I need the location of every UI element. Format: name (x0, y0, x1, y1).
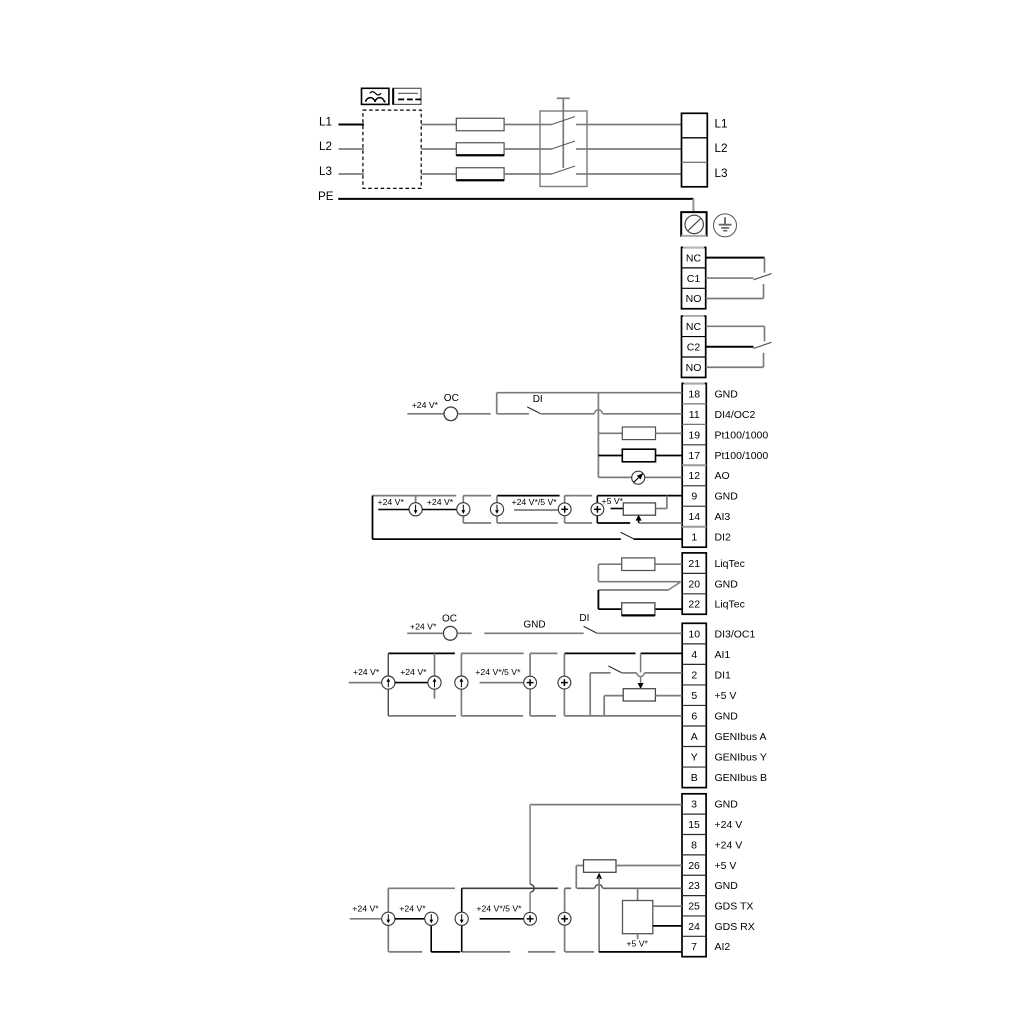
svg-text:2: 2 (691, 669, 697, 681)
svg-text:GND: GND (523, 620, 545, 631)
svg-text:7: 7 (691, 941, 697, 953)
svg-text:C2: C2 (687, 341, 701, 353)
svg-text:B: B (691, 772, 698, 784)
svg-text:19: 19 (688, 429, 700, 441)
svg-text:GND: GND (715, 578, 739, 590)
svg-text:L2: L2 (715, 142, 728, 155)
svg-text:GDS TX: GDS TX (715, 900, 754, 912)
svg-text:AO: AO (715, 470, 730, 482)
svg-text:5: 5 (691, 690, 697, 702)
svg-text:DI2: DI2 (715, 532, 732, 544)
svg-text:17: 17 (688, 450, 700, 462)
svg-text:DI: DI (579, 613, 589, 624)
svg-text:24: 24 (688, 921, 700, 933)
svg-text:9: 9 (691, 491, 697, 503)
svg-text:GND: GND (715, 880, 739, 892)
svg-text:+24 V*: +24 V* (399, 904, 426, 914)
svg-text:11: 11 (689, 409, 700, 421)
svg-text:22: 22 (688, 599, 700, 611)
svg-text:10: 10 (688, 628, 700, 640)
svg-text:+5 V: +5 V (715, 860, 737, 872)
svg-text:PE: PE (318, 190, 334, 203)
svg-text:+24 V*: +24 V* (410, 622, 437, 632)
svg-text:4: 4 (691, 649, 697, 661)
svg-text:LiqTec: LiqTec (715, 558, 745, 570)
svg-text:+24 V*: +24 V* (427, 497, 454, 507)
svg-text:L1: L1 (715, 117, 728, 130)
svg-text:21: 21 (688, 558, 700, 570)
svg-text:+24 V*/5 V*: +24 V*/5 V* (475, 667, 521, 677)
svg-text:NO: NO (686, 362, 702, 374)
svg-text:NC: NC (686, 252, 702, 264)
svg-text:GENIbus Y: GENIbus Y (715, 751, 767, 763)
svg-text:OC: OC (442, 613, 457, 624)
svg-text:3: 3 (691, 799, 697, 811)
svg-text:AI2: AI2 (715, 941, 731, 953)
svg-text:GND: GND (715, 799, 739, 811)
svg-text:GENIbus B: GENIbus B (715, 772, 768, 784)
svg-text:GDS RX: GDS RX (715, 921, 755, 933)
svg-text:+24 V*/5 V*: +24 V*/5 V* (476, 904, 522, 914)
svg-text:DI3/OC1: DI3/OC1 (715, 628, 756, 640)
svg-text:+24 V*/5 V*: +24 V*/5 V* (512, 497, 558, 507)
svg-text:A: A (691, 731, 698, 743)
svg-text:18: 18 (688, 388, 700, 400)
svg-text:14: 14 (688, 511, 700, 523)
svg-text:L2: L2 (319, 140, 332, 153)
svg-text:+24 V*: +24 V* (412, 400, 439, 410)
svg-text:GND: GND (715, 491, 739, 503)
svg-text:+24 V*: +24 V* (353, 667, 380, 677)
svg-text:GENIbus A: GENIbus A (715, 731, 767, 743)
svg-text:20: 20 (688, 578, 700, 590)
svg-text:15: 15 (688, 819, 700, 831)
svg-text:AI1: AI1 (715, 649, 731, 661)
svg-text:NC: NC (686, 321, 702, 333)
svg-text:Y: Y (691, 751, 698, 763)
svg-text:+24 V*: +24 V* (378, 497, 405, 507)
svg-text:+24 V: +24 V (715, 819, 743, 831)
svg-text:NO: NO (686, 293, 702, 305)
svg-text:L3: L3 (715, 167, 728, 180)
svg-text:L1: L1 (319, 115, 332, 128)
svg-text:6: 6 (691, 710, 697, 722)
svg-text:L3: L3 (319, 165, 332, 178)
svg-text:+5 V: +5 V (715, 690, 737, 702)
svg-text:26: 26 (688, 860, 700, 872)
svg-text:AI3: AI3 (715, 511, 731, 523)
svg-text:C1: C1 (687, 273, 701, 285)
svg-text:DI4/OC2: DI4/OC2 (715, 409, 756, 421)
svg-text:+5 V*: +5 V* (626, 939, 648, 949)
svg-text:8: 8 (691, 839, 697, 851)
svg-text:23: 23 (688, 880, 700, 892)
svg-text:Pt100/1000: Pt100/1000 (715, 450, 769, 462)
svg-text:DI1: DI1 (715, 669, 732, 681)
svg-text:DI: DI (533, 394, 543, 405)
svg-text:12: 12 (688, 470, 700, 482)
svg-text:+24 V: +24 V (715, 839, 743, 851)
svg-text:1: 1 (691, 532, 697, 544)
svg-text:Pt100/1000: Pt100/1000 (715, 429, 769, 441)
svg-text:+24 V*: +24 V* (400, 667, 427, 677)
svg-text:+24 V*: +24 V* (352, 904, 379, 914)
svg-text:25: 25 (688, 900, 700, 912)
svg-text:GND: GND (715, 388, 739, 400)
svg-text:OC: OC (444, 393, 459, 404)
svg-text:+5 V*: +5 V* (602, 496, 624, 506)
svg-text:GND: GND (715, 710, 739, 722)
svg-text:LiqTec: LiqTec (715, 599, 745, 611)
